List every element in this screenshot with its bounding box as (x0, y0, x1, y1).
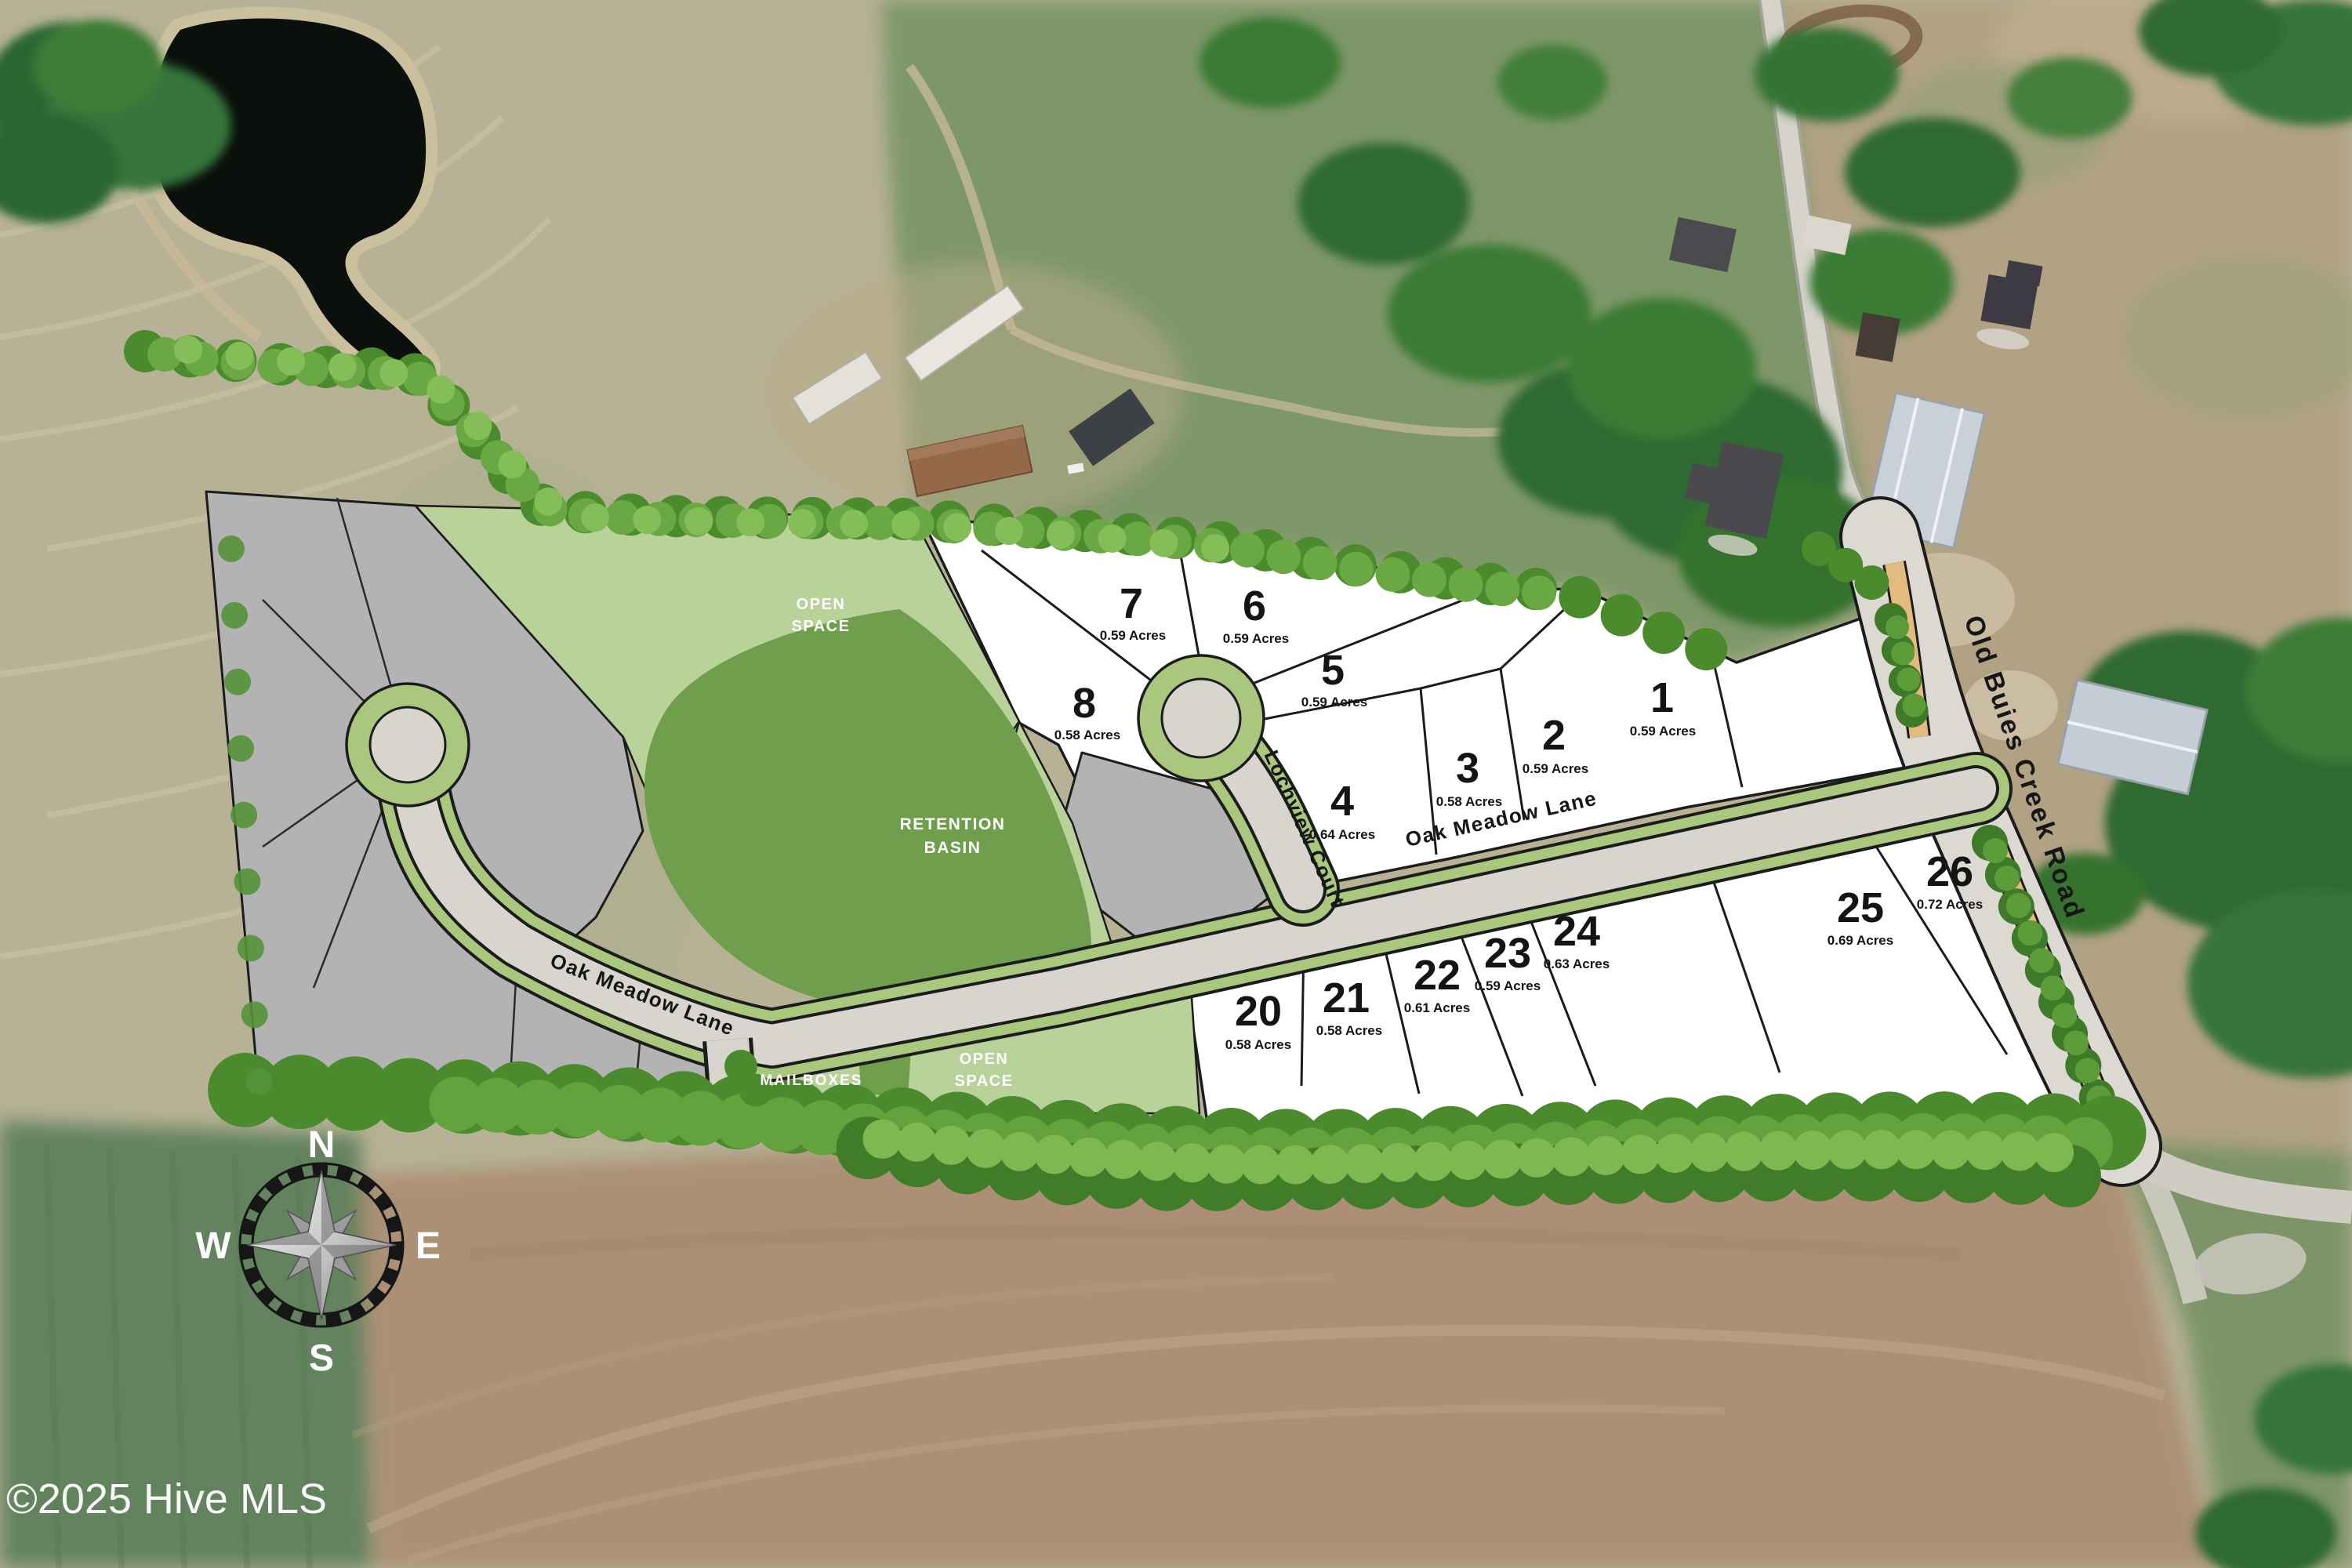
open-space-label-south-line1: OPEN (960, 1051, 1009, 1068)
compass-east: E (416, 1225, 441, 1267)
svg-text:0.58 Acres: 0.58 Acres (1436, 794, 1502, 809)
svg-text:0.64 Acres: 0.64 Acres (1309, 827, 1375, 842)
lot-23: 23 0.59 Acres (1475, 930, 1541, 993)
svg-text:23: 23 (1484, 930, 1531, 977)
svg-text:0.63 Acres: 0.63 Acres (1544, 956, 1610, 971)
compass-south: S (309, 1338, 334, 1379)
svg-text:8: 8 (1073, 680, 1096, 727)
house (1856, 312, 1900, 361)
svg-text:24: 24 (1553, 908, 1600, 955)
svg-text:20: 20 (1235, 988, 1282, 1035)
svg-text:0.59 Acres: 0.59 Acres (1100, 628, 1166, 643)
svg-text:0.59 Acres: 0.59 Acres (1475, 978, 1541, 993)
svg-text:0.59 Acres: 0.59 Acres (1523, 761, 1588, 776)
lochview-cul-de-sac (1138, 655, 1264, 781)
open-space-label-north-line2: SPACE (792, 618, 851, 635)
retention-basin-label-line2: BASIN (924, 839, 982, 857)
compass-north: N (308, 1124, 336, 1166)
svg-text:6: 6 (1243, 583, 1266, 630)
svg-text:21: 21 (1323, 975, 1370, 1022)
svg-text:0.59 Acres: 0.59 Acres (1630, 724, 1696, 739)
retention-basin-label-line1: RETENTION (900, 815, 1006, 833)
svg-text:0.72 Acres: 0.72 Acres (1917, 897, 1983, 912)
svg-text:26: 26 (1926, 848, 1973, 895)
svg-text:25: 25 (1837, 884, 1884, 931)
compass-west: W (195, 1225, 231, 1267)
svg-text:1: 1 (1650, 674, 1674, 721)
svg-text:3: 3 (1456, 745, 1479, 792)
svg-text:2: 2 (1542, 712, 1566, 759)
svg-text:4: 4 (1330, 778, 1354, 825)
svg-text:7: 7 (1120, 580, 1143, 627)
svg-text:0.58 Acres: 0.58 Acres (1316, 1023, 1382, 1038)
site-plan-map: Oak Meadow Lane Oak Meadow Lane Lochview… (0, 0, 2352, 1568)
svg-text:0.69 Acres: 0.69 Acres (1828, 933, 1893, 948)
open-space-label-north-line1: OPEN (797, 596, 846, 613)
lot-22: 22 0.61 Acres (1404, 952, 1470, 1015)
svg-text:0.58 Acres: 0.58 Acres (1054, 728, 1120, 742)
lot-24: 24 0.63 Acres (1544, 908, 1610, 971)
lot-26: 26 0.72 Acres (1917, 848, 1983, 912)
svg-text:0.59 Acres: 0.59 Acres (1223, 631, 1289, 646)
plat-aerial-svg: Oak Meadow Lane Oak Meadow Lane Lochview… (0, 0, 2352, 1568)
mailboxes-label: MAILBOXES (760, 1073, 863, 1089)
lot-25: 25 0.69 Acres (1828, 884, 1893, 948)
mls-watermark: ©2025 Hive MLS (6, 1475, 327, 1523)
open-space-label-south-line2: SPACE (955, 1073, 1014, 1090)
svg-text:22: 22 (1414, 952, 1461, 999)
west-cul-de-sac (347, 684, 469, 806)
svg-text:0.61 Acres: 0.61 Acres (1404, 1000, 1470, 1015)
svg-text:0.58 Acres: 0.58 Acres (1225, 1037, 1291, 1052)
lot-20: 20 0.58 Acres (1225, 988, 1291, 1052)
svg-text:0.59 Acres: 0.59 Acres (1301, 695, 1367, 710)
svg-text:5: 5 (1321, 647, 1345, 694)
